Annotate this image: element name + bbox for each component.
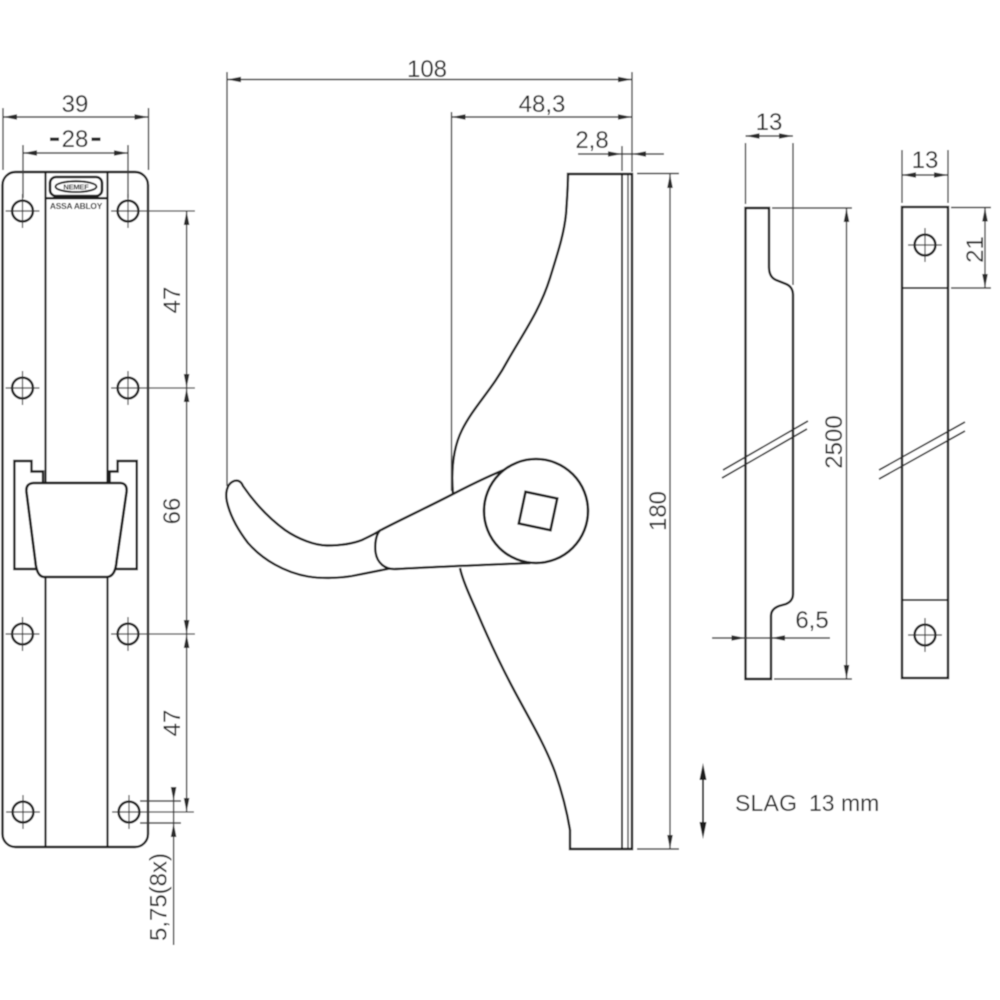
svg-text:NEMEF: NEMEF — [63, 182, 89, 191]
svg-text:2500: 2500 — [821, 415, 848, 468]
svg-text:mm: mm — [841, 790, 879, 816]
svg-text:47: 47 — [159, 710, 186, 737]
svg-text:28: 28 — [62, 126, 89, 153]
svg-text:SLAG: SLAG — [735, 790, 797, 816]
svg-text:13: 13 — [912, 147, 939, 174]
svg-text:39: 39 — [62, 91, 89, 118]
svg-text:ASSA ABLOY: ASSA ABLOY — [50, 201, 103, 211]
svg-text:2,8: 2,8 — [575, 127, 608, 154]
svg-text:47: 47 — [159, 287, 186, 314]
svg-text:5,75(8x): 5,75(8x) — [146, 853, 173, 941]
svg-text:108: 108 — [407, 56, 447, 83]
svg-text:13: 13 — [809, 790, 835, 816]
svg-text:6,5: 6,5 — [795, 607, 828, 634]
svg-text:66: 66 — [159, 498, 186, 525]
svg-text:21: 21 — [962, 236, 989, 263]
svg-text:180: 180 — [645, 491, 672, 531]
svg-text:48,3: 48,3 — [519, 91, 566, 118]
svg-text:13: 13 — [756, 109, 783, 136]
